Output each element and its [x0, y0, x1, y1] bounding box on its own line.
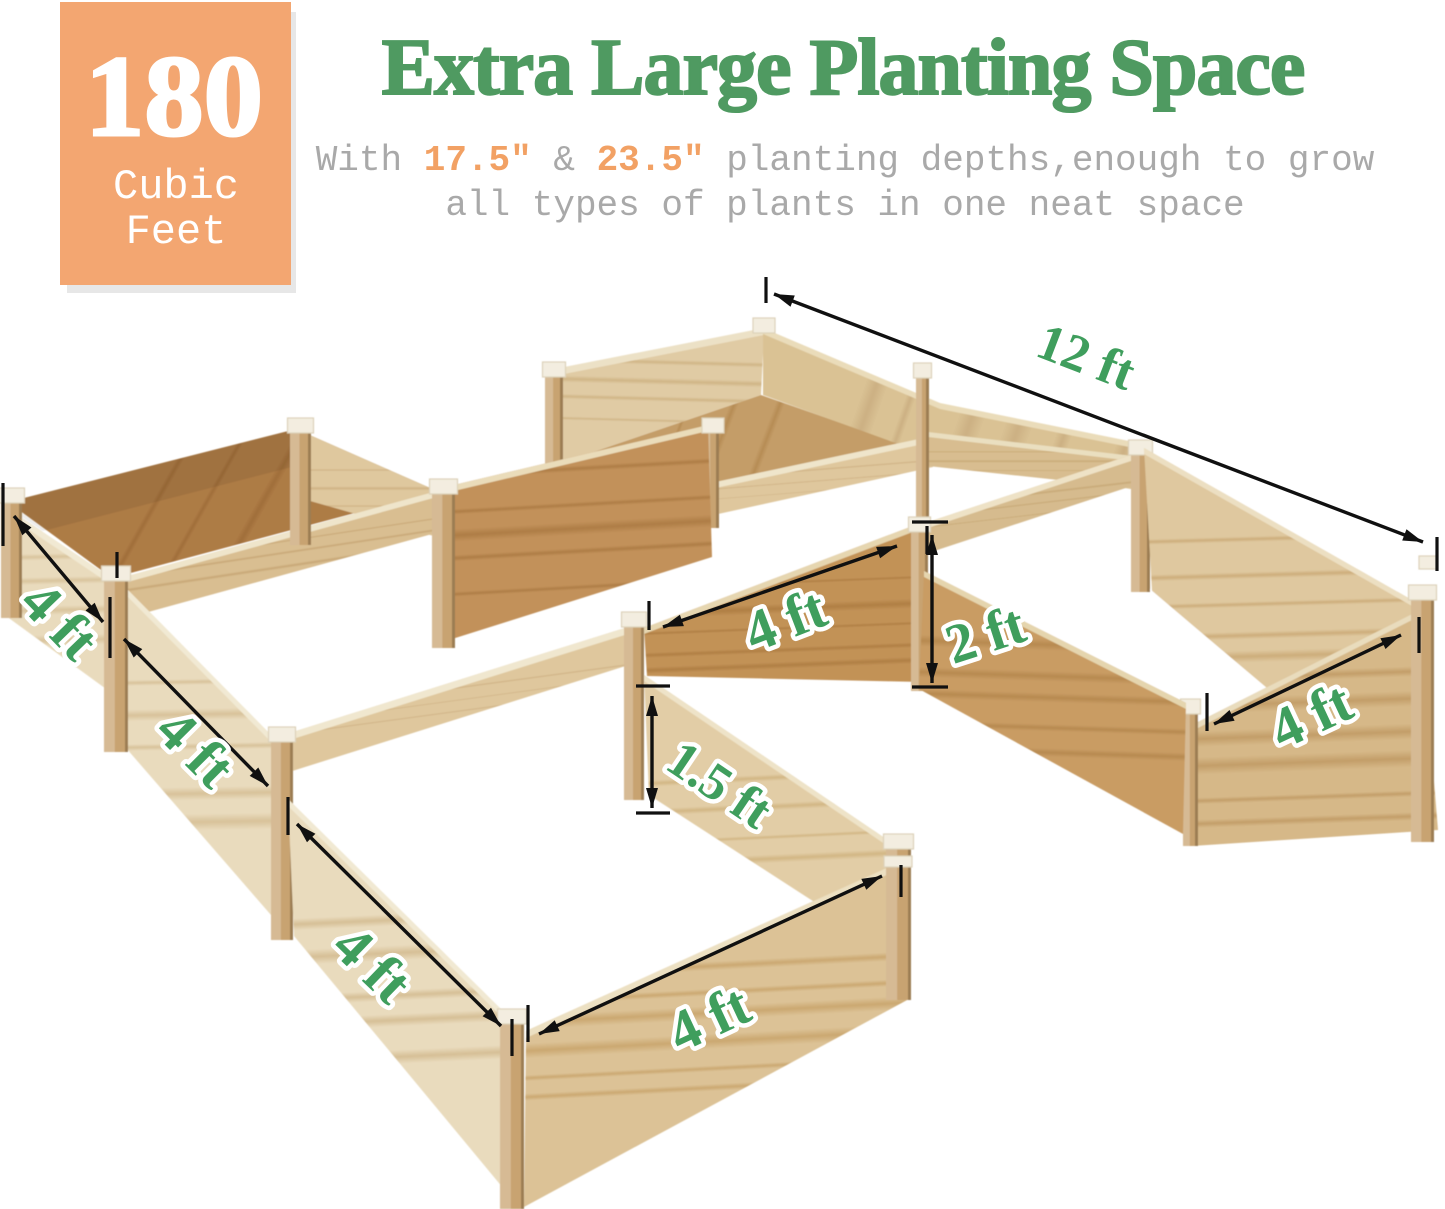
svg-text:Extra Large Planting Space: Extra Large Planting Space — [382, 24, 1305, 112]
svg-text:With 17.5" & 23.5" planting de: With 17.5" & 23.5" planting depths,enoug… — [316, 140, 1375, 181]
svg-text:180: 180 — [85, 33, 263, 160]
svg-text:Feet: Feet — [126, 208, 227, 256]
svg-text:all types of plants in one nea: all types of plants in one neat space — [445, 185, 1244, 226]
svg-text:Cubic: Cubic — [113, 163, 239, 211]
